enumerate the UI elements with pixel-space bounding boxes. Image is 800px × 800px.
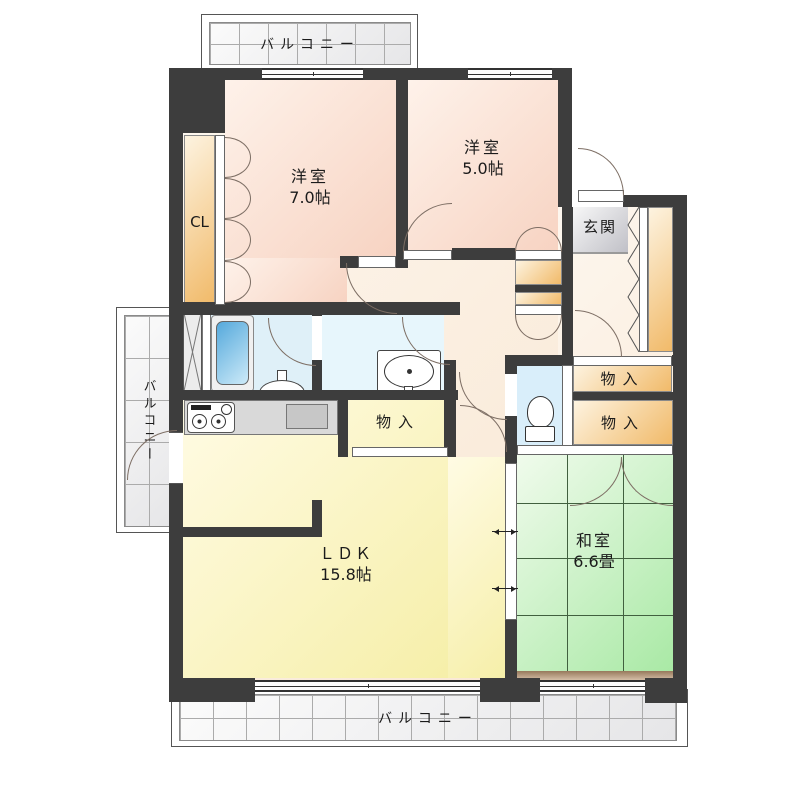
bedroom2-size: 5.0帖: [408, 158, 558, 179]
bathtub-inner: [216, 321, 249, 385]
wall: [505, 416, 517, 463]
wall: [565, 392, 673, 400]
ldk-size: 15.8帖: [286, 564, 406, 585]
stove-grill: [191, 405, 211, 410]
stove-burner-right: [211, 414, 226, 429]
closet-label: CL: [184, 213, 215, 231]
slide-arrow: [492, 531, 518, 532]
toilet-tank: [525, 426, 555, 442]
wall: [180, 527, 322, 537]
pipe-space-panel: [202, 312, 211, 392]
stove-burner-left: [192, 414, 207, 429]
sliding-door: [352, 447, 448, 457]
floorplan: バルコニー バルコニー バルコニー: [0, 0, 800, 800]
stove-burner-small: [221, 404, 232, 415]
storage-hall-label: 物入: [348, 411, 448, 432]
ldk-floor: [183, 400, 448, 678]
bedroom1-label: 洋室 7.0帖: [235, 166, 385, 208]
washbasin-drain: [407, 369, 412, 374]
entrance-label: 玄関: [572, 216, 628, 237]
hall-closet-lower: [515, 292, 562, 305]
ldk-floor-east: [448, 457, 505, 678]
sliding-door: [562, 365, 573, 447]
balcony-top-grid: バルコニー: [209, 22, 411, 65]
accordion-door: [627, 207, 639, 352]
wall: [515, 285, 573, 292]
entrance-step-line: [572, 252, 628, 254]
wall: [672, 355, 687, 366]
japanese-room-size: 6.6畳: [534, 551, 654, 572]
storage-right-upper-label: 物入: [573, 368, 672, 389]
wall: [312, 500, 322, 537]
floorplan-page: { "labels": { "balcony_top": "バルコニー", "b…: [0, 0, 800, 800]
ldk-name: ＬＤＫ: [286, 543, 406, 564]
pipe-space: [183, 312, 202, 392]
wall: [558, 68, 572, 207]
wall: [338, 400, 348, 457]
kitchen-sink: [286, 404, 328, 429]
closet-door-track: [215, 135, 225, 305]
wall: [673, 195, 687, 703]
bifold-track: [515, 305, 562, 315]
storage-right-lower-label: 物入: [573, 412, 673, 433]
ldk-label: ＬＤＫ 15.8帖: [286, 543, 406, 585]
wall: [505, 620, 517, 678]
balcony-left-grid: バルコニー: [124, 315, 172, 527]
window: [262, 68, 363, 80]
wall: [169, 484, 183, 702]
bedroom2-label: 洋室 5.0帖: [408, 137, 558, 179]
japanese-room-name: 和室: [534, 530, 654, 551]
balcony-top-label: バルコニー: [260, 34, 360, 54]
wall: [169, 390, 458, 400]
hall-closet-upper: [515, 260, 562, 285]
shoe-closet: [648, 207, 673, 352]
sliding-door: [517, 445, 673, 455]
japanese-room-label: 和室 6.6畳: [534, 530, 654, 572]
door-arc-entrance: [578, 148, 624, 196]
slide-arrow: [492, 588, 518, 589]
accordion-track: [639, 207, 648, 352]
wall: [480, 678, 540, 702]
sliding-door: [573, 356, 672, 366]
sliding-door: [505, 463, 517, 620]
wall: [623, 195, 687, 207]
bedroom1-size: 7.0帖: [235, 187, 385, 208]
toilet-bowl: [527, 396, 554, 428]
wall: [169, 80, 183, 432]
wall: [169, 678, 255, 702]
balcony-bottom-label: バルコニー: [378, 708, 478, 728]
window: [540, 680, 645, 692]
window: [468, 68, 552, 80]
wall: [452, 248, 515, 260]
window: [255, 680, 480, 692]
wall: [645, 678, 687, 703]
bedroom1-name: 洋室: [235, 166, 385, 187]
bedroom2-name: 洋室: [408, 137, 558, 158]
